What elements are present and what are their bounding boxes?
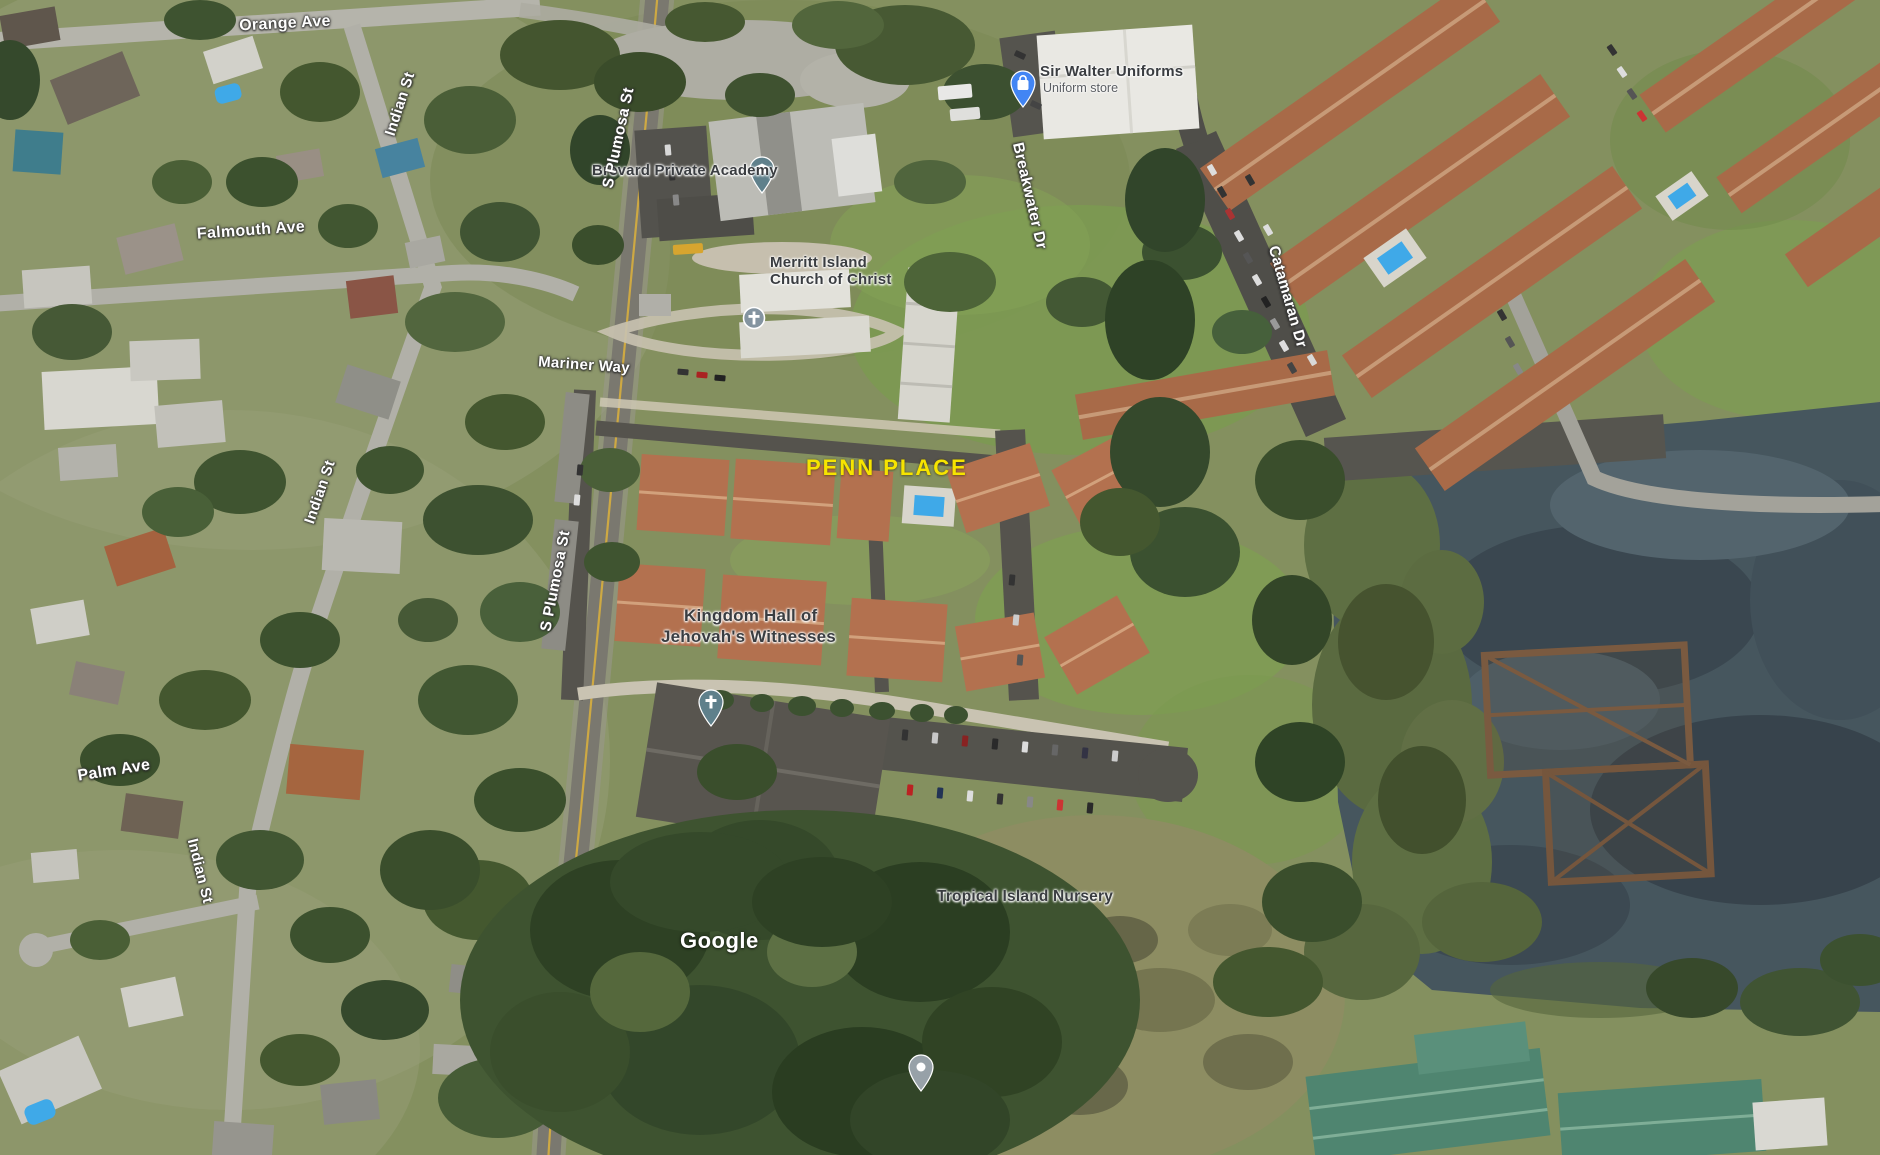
poi-label-tropical-island-nursery[interactable]: Tropical Island Nursery: [937, 888, 1113, 906]
google-logo[interactable]: Google: [680, 928, 759, 954]
lake: [1304, 402, 1880, 1018]
nursery-pin-icon[interactable]: [908, 1054, 934, 1097]
poi-label-sir-walter-uniforms[interactable]: Sir Walter Uniforms: [1040, 63, 1183, 80]
satellite-imagery: [0, 0, 1880, 1155]
satellite-map[interactable]: Sir Walter Uniforms Uniform store Brevar…: [0, 0, 1880, 1155]
poi-label-merritt-island-line2[interactable]: Church of Christ: [770, 271, 892, 288]
church-poi-icon[interactable]: [742, 306, 766, 335]
poi-label-kingdom-hall-line1[interactable]: Kingdom Hall of: [684, 606, 817, 626]
kingdom-hall-pin-icon[interactable]: [698, 689, 724, 732]
poi-label-kingdom-hall-line2[interactable]: Jehovah's Witnesses: [661, 627, 836, 647]
poi-label-merritt-island-line1[interactable]: Merritt Island: [770, 254, 867, 271]
poi-sublabel-uniform-store[interactable]: Uniform store: [1043, 81, 1118, 95]
penn-place-label[interactable]: PENN PLACE: [806, 455, 968, 481]
sir-walter-store-pin-icon[interactable]: [1010, 70, 1036, 113]
